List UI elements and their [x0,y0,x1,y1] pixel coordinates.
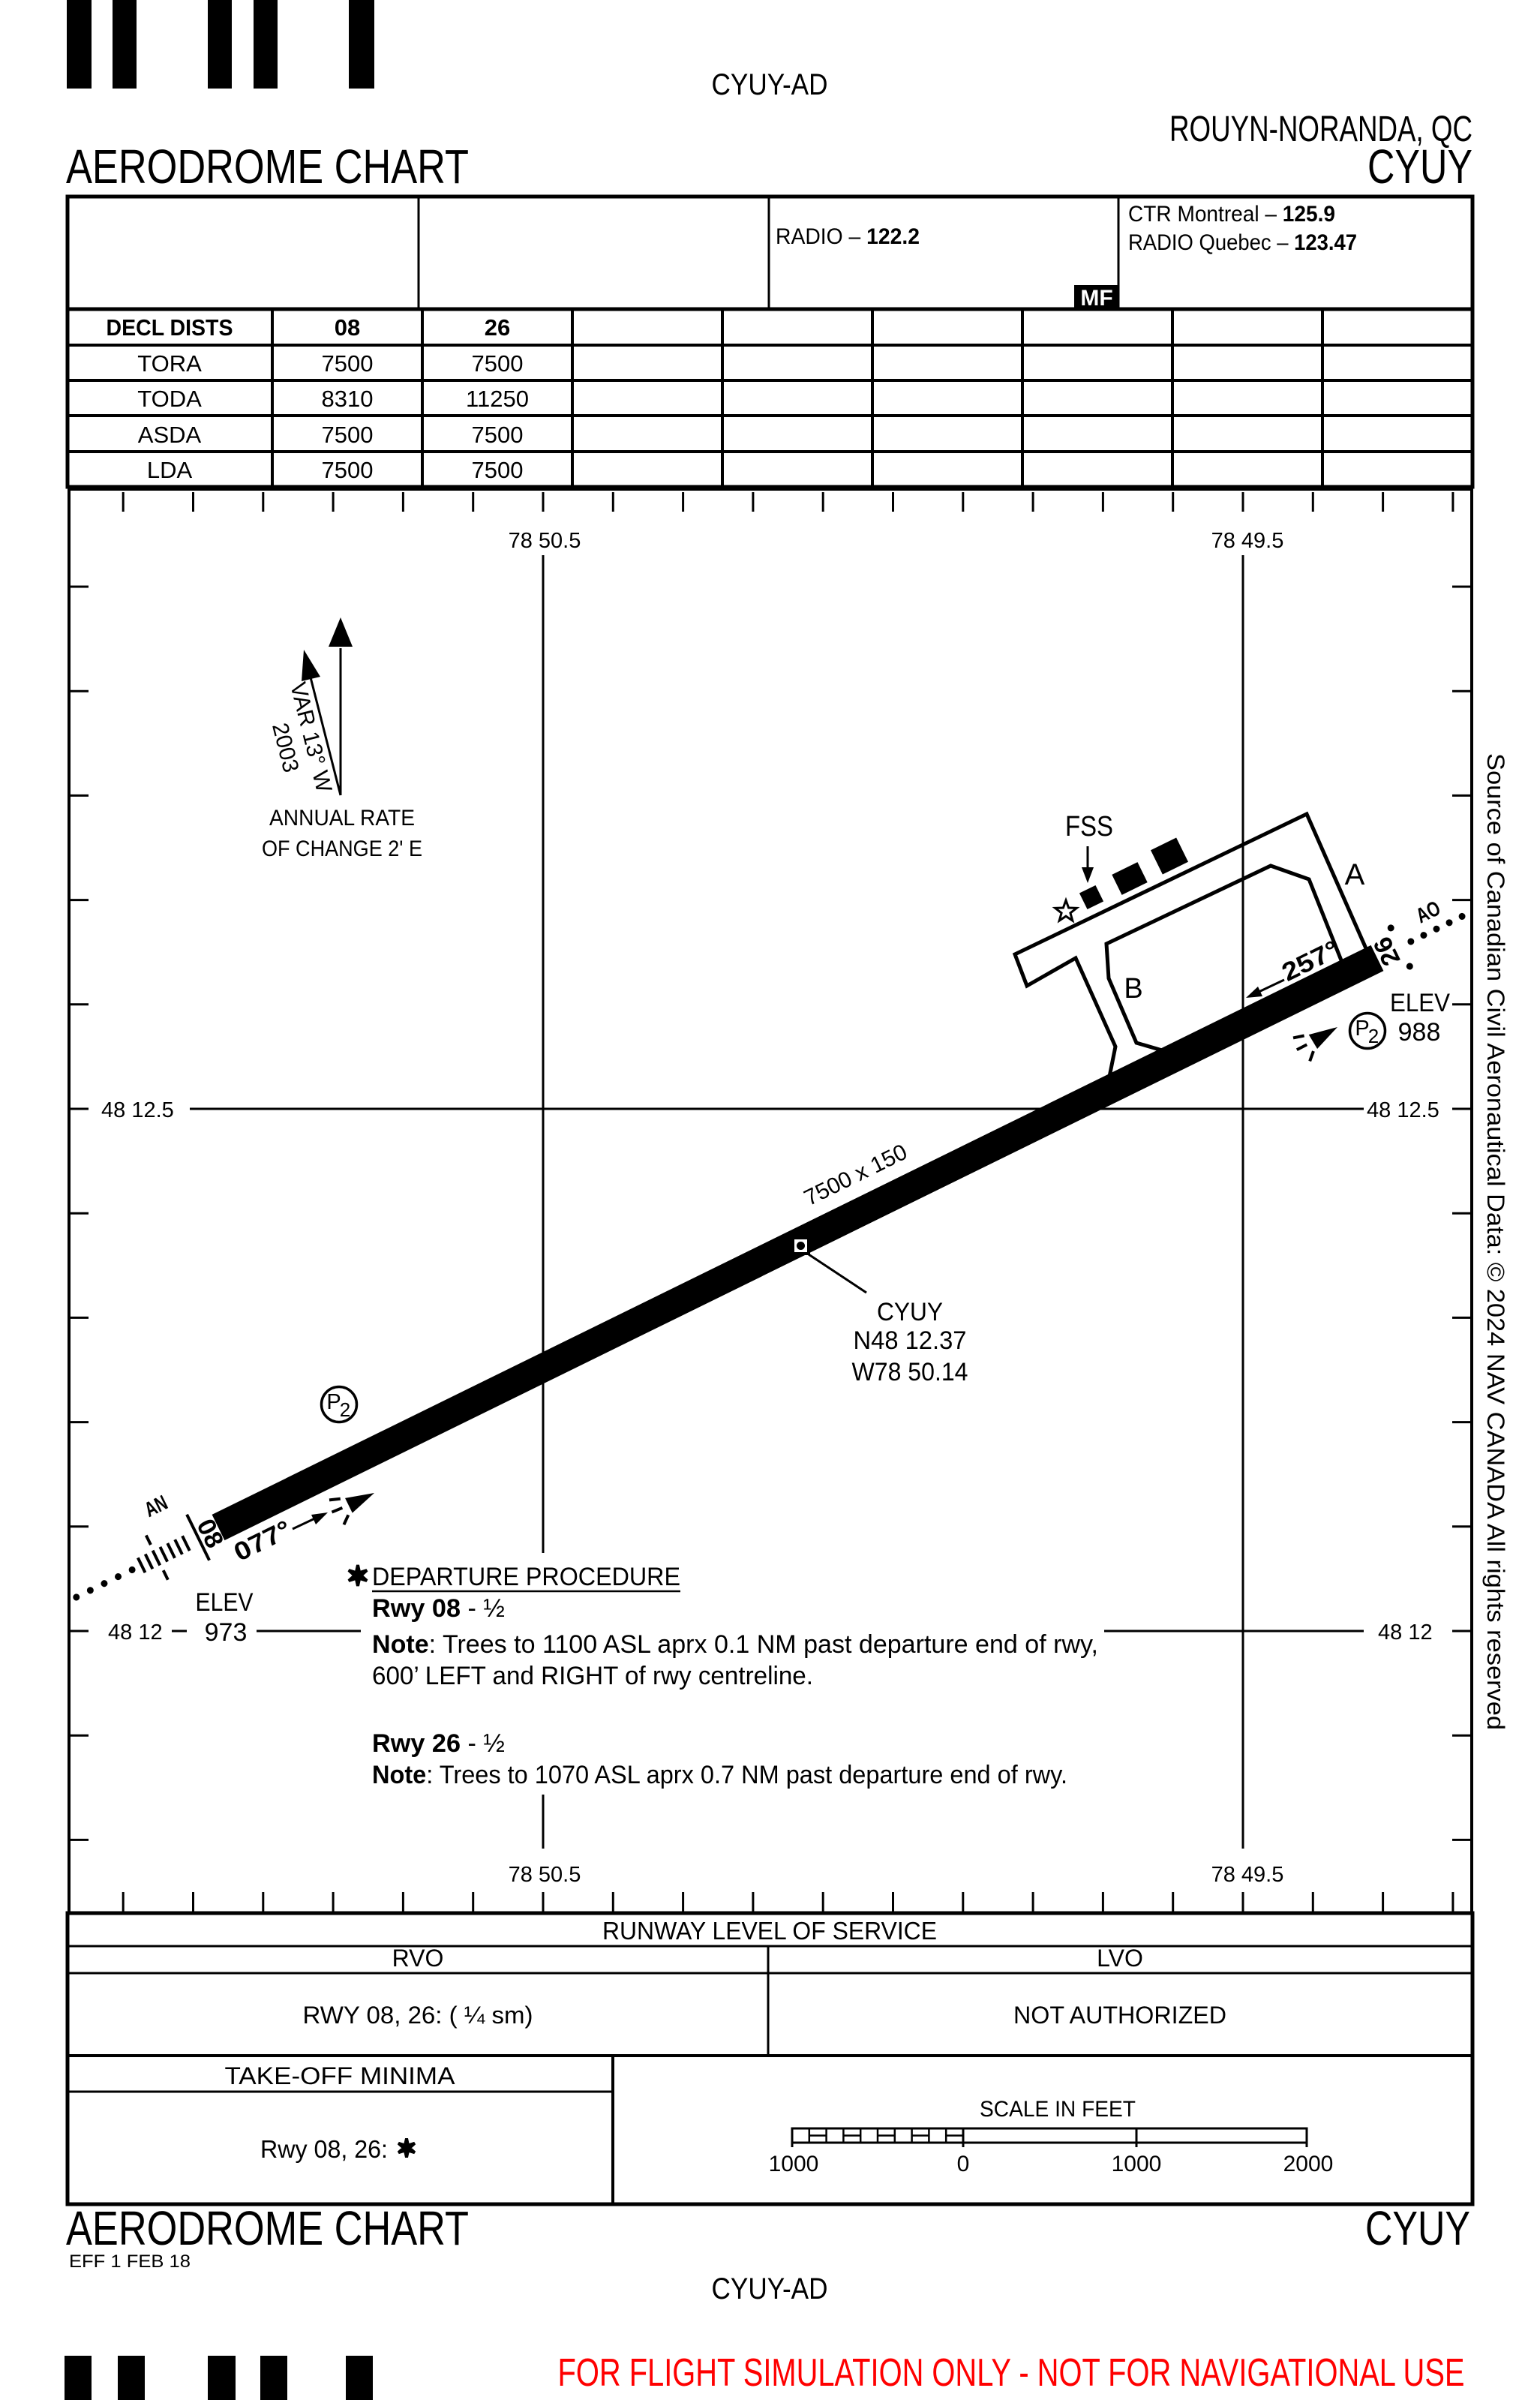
svg-text:NOT AUTHORIZED: NOT AUTHORIZED [1013,2002,1226,2029]
svg-text:A: A [1345,858,1365,891]
svg-text:78 49.5: 78 49.5 [1211,1863,1284,1887]
svg-text:LDA: LDA [147,457,193,483]
svg-text:48 12.5: 48 12.5 [1367,1098,1439,1122]
svg-text:26: 26 [485,314,510,341]
svg-text:RADIO Quebec – 123.47: RADIO Quebec – 123.47 [1128,230,1357,255]
svg-text:RVO: RVO [392,1945,444,1972]
svg-text:988: 988 [1398,1018,1441,1047]
svg-text:CYUY: CYUY [877,1298,943,1326]
svg-text:SCALE IN FEET: SCALE IN FEET [980,2097,1136,2122]
svg-text:FSS: FSS [1065,811,1113,843]
svg-text:7500: 7500 [472,457,524,483]
svg-text:2: 2 [340,1398,350,1421]
svg-text:RUNWAY LEVEL OF SERVICE: RUNWAY LEVEL OF SERVICE [602,1917,937,1945]
svg-text:2000: 2000 [1283,2152,1334,2176]
svg-text:48 12: 48 12 [1378,1621,1433,1645]
svg-text:CYUY: CYUY [1367,140,1472,194]
svg-text:MF: MF [1080,286,1112,311]
svg-text:2: 2 [1368,1025,1379,1047]
svg-text:OF CHANGE 2' E: OF CHANGE 2' E [262,837,422,861]
svg-text:DECL DISTS: DECL DISTS [107,314,233,341]
svg-text:1000: 1000 [769,2152,819,2176]
svg-text:AN: AN [141,1491,172,1521]
svg-text:Rwy 08, 26:: Rwy 08, 26: [260,2135,388,2163]
svg-text:78 50.5: 78 50.5 [509,529,581,553]
svg-text:Source of Canadian Civil Aeron: Source of Canadian Civil Aeronautical Da… [1482,753,1509,1730]
svg-text:0: 0 [957,2152,970,2176]
svg-text:AO: AO [1412,897,1444,928]
svg-text:N48 12.37: N48 12.37 [854,1326,967,1355]
svg-text:48 12.5: 48 12.5 [101,1098,174,1122]
svg-text:CYUY: CYUY [1365,2201,1470,2255]
svg-text:RWY 08, 26: ( ¼ sm): RWY 08, 26: ( ¼ sm) [303,2002,533,2029]
svg-text:RADIO – 122.2: RADIO – 122.2 [776,224,920,249]
svg-text:08: 08 [335,314,360,341]
svg-text:B: B [1124,973,1142,1005]
svg-text:8310: 8310 [322,386,374,412]
svg-text:LVO: LVO [1097,1945,1143,1972]
svg-text:DEPARTURE PROCEDURE: DEPARTURE PROCEDURE [372,1563,680,1591]
svg-text:TORA: TORA [137,350,202,377]
svg-text:EFF 1 FEB 18: EFF 1 FEB 18 [69,2251,191,2272]
svg-text:CYUY-AD: CYUY-AD [712,68,828,101]
svg-text:7500: 7500 [472,350,524,377]
svg-text:Rwy 08 - ½: Rwy 08 - ½ [372,1594,505,1623]
svg-text:CYUY-AD: CYUY-AD [712,2272,828,2305]
svg-text:AERODROME CHART: AERODROME CHART [66,2201,469,2255]
svg-text:7500: 7500 [322,457,374,483]
svg-text:Rwy 26 - ½: Rwy 26 - ½ [372,1729,505,1758]
svg-text:78 49.5: 78 49.5 [1211,529,1284,553]
svg-text:ANNUAL RATE: ANNUAL RATE [269,806,415,831]
svg-text:78 50.5: 78 50.5 [509,1863,581,1887]
svg-text:ELEV: ELEV [1390,989,1450,1017]
svg-text:7500: 7500 [472,422,524,448]
svg-text:P: P [1355,1017,1369,1041]
svg-text:CTR Montreal – 125.9: CTR Montreal – 125.9 [1128,202,1335,227]
svg-text:TODA: TODA [137,386,202,412]
svg-text:Note: Trees to 1100 ASL aprx 0: Note: Trees to 1100 ASL aprx 0.1 NM past… [372,1630,1098,1659]
svg-text:11250: 11250 [466,386,529,412]
svg-text:ASDA: ASDA [138,422,202,448]
svg-text:Note: Trees to 1070 ASL aprx 0: Note: Trees to 1070 ASL aprx 0.7 NM past… [372,1761,1067,1789]
svg-text:48 12: 48 12 [108,1621,163,1645]
svg-text:AERODROME CHART: AERODROME CHART [66,140,469,194]
svg-text:7500: 7500 [322,422,374,448]
svg-text:W78 50.14: W78 50.14 [852,1358,968,1386]
svg-text:7500: 7500 [322,350,374,377]
svg-text:ELEV: ELEV [196,1588,254,1617]
svg-text:973: 973 [205,1618,248,1647]
svg-text:FOR FLIGHT SIMULATION ONLY - N: FOR FLIGHT SIMULATION ONLY - NOT FOR NAV… [558,2351,1465,2395]
svg-text:P: P [326,1390,341,1414]
svg-text:600’ LEFT and RIGHT of rwy cen: 600’ LEFT and RIGHT of rwy centreline. [372,1662,813,1690]
svg-text:TAKE-OFF MINIMA: TAKE-OFF MINIMA [225,2062,456,2089]
svg-text:1000: 1000 [1112,2152,1162,2176]
